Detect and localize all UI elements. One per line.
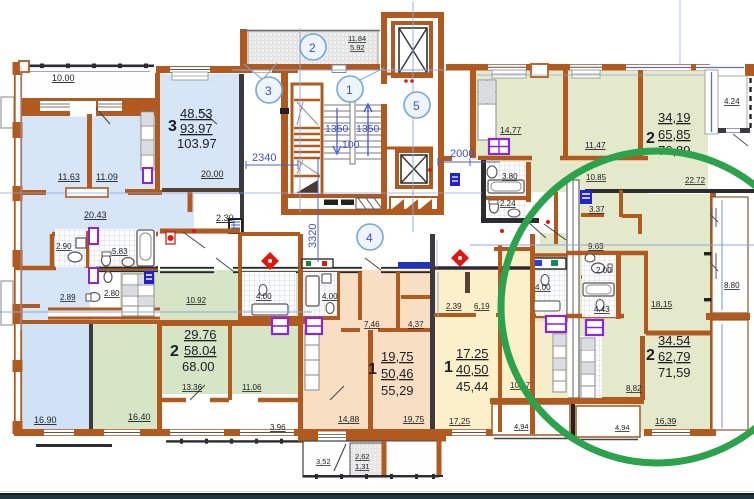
svg-text:4,37: 4,37 <box>408 320 424 329</box>
svg-text:34,19: 34,19 <box>658 110 691 125</box>
svg-text:8.80: 8.80 <box>724 281 740 290</box>
svg-text:48.53: 48.53 <box>180 106 213 121</box>
svg-text:4.00: 4.00 <box>322 292 338 301</box>
svg-text:20.43: 20.43 <box>84 210 107 220</box>
svg-text:10.85: 10.85 <box>586 173 607 182</box>
svg-text:34.54: 34.54 <box>658 333 691 348</box>
svg-text:4: 4 <box>366 231 373 245</box>
svg-text:3,52: 3,52 <box>316 457 331 466</box>
svg-text:14,77: 14,77 <box>500 125 522 135</box>
svg-text:2: 2 <box>646 130 655 147</box>
svg-text:2.80: 2.80 <box>104 289 120 298</box>
svg-text:3.37: 3.37 <box>589 205 605 214</box>
svg-text:10.00: 10.00 <box>52 73 75 83</box>
svg-text:65,85: 65,85 <box>658 127 691 142</box>
svg-text:4.00: 4.00 <box>535 283 551 292</box>
svg-text:71,59: 71,59 <box>658 365 691 380</box>
svg-text:40,50: 40,50 <box>456 362 489 377</box>
svg-text:11.63: 11.63 <box>58 172 80 182</box>
svg-text:5: 5 <box>413 99 420 113</box>
svg-text:45,44: 45,44 <box>456 379 489 394</box>
svg-text:68.00: 68.00 <box>182 359 215 374</box>
svg-text:3.80: 3.80 <box>502 172 518 181</box>
svg-text:16.40: 16.40 <box>128 412 151 422</box>
svg-text:4,94: 4,94 <box>615 423 630 432</box>
svg-text:16,39: 16,39 <box>655 416 677 426</box>
svg-text:17.25: 17.25 <box>456 346 489 361</box>
svg-text:50,46: 50,46 <box>381 366 414 381</box>
svg-text:2: 2 <box>170 343 179 360</box>
svg-text:1350: 1350 <box>325 123 349 135</box>
svg-text:14,88: 14,88 <box>338 414 360 424</box>
svg-text:17,25: 17,25 <box>449 416 471 426</box>
svg-text:2.39: 2.39 <box>446 302 462 311</box>
svg-text:2.00: 2.00 <box>596 266 612 275</box>
svg-text:2.30: 2.30 <box>216 213 234 223</box>
svg-text:3: 3 <box>265 84 272 98</box>
svg-text:2: 2 <box>309 41 316 55</box>
svg-text:5.92: 5.92 <box>350 43 365 52</box>
svg-text:18,15: 18,15 <box>651 299 673 309</box>
svg-text:103.97: 103.97 <box>177 136 217 151</box>
svg-text:4.24: 4.24 <box>724 97 740 106</box>
svg-text:29.76: 29.76 <box>184 327 217 342</box>
svg-text:100: 100 <box>342 139 360 151</box>
svg-text:1: 1 <box>346 83 353 97</box>
svg-text:19,75: 19,75 <box>381 349 414 364</box>
svg-text:1: 1 <box>444 359 453 376</box>
svg-text:11.09: 11.09 <box>96 172 118 182</box>
svg-text:55,29: 55,29 <box>381 383 414 398</box>
svg-text:3.96: 3.96 <box>270 423 286 432</box>
svg-text:5.83: 5.83 <box>112 247 128 256</box>
svg-text:6,19: 6,19 <box>474 302 490 311</box>
svg-text:11.84: 11.84 <box>348 34 366 43</box>
svg-text:13.36: 13.36 <box>182 383 203 392</box>
svg-text:22.72: 22.72 <box>685 176 706 185</box>
svg-text:7,46: 7,46 <box>364 320 380 329</box>
svg-text:3: 3 <box>168 118 177 135</box>
svg-text:3320: 3320 <box>307 224 319 248</box>
svg-text:8,82: 8,82 <box>626 384 642 393</box>
svg-text:1350: 1350 <box>356 123 380 135</box>
svg-text:1,31: 1,31 <box>355 462 370 471</box>
svg-text:10.92: 10.92 <box>186 296 207 305</box>
svg-text:62,79: 62,79 <box>658 349 691 364</box>
svg-text:58.04: 58.04 <box>184 343 217 358</box>
svg-text:2.89: 2.89 <box>60 293 76 302</box>
svg-text:2: 2 <box>646 347 655 364</box>
svg-text:2340: 2340 <box>252 152 276 164</box>
svg-text:1: 1 <box>368 361 377 378</box>
svg-text:4,94: 4,94 <box>514 422 529 431</box>
svg-text:2.24: 2.24 <box>500 199 516 208</box>
svg-text:19,75: 19,75 <box>403 414 425 424</box>
svg-text:2.90: 2.90 <box>56 242 72 251</box>
svg-text:4.00: 4.00 <box>256 292 272 301</box>
svg-text:11.06: 11.06 <box>242 383 262 392</box>
svg-text:20.00: 20.00 <box>201 169 224 179</box>
svg-text:9.63: 9.63 <box>588 242 604 251</box>
svg-text:16.90: 16.90 <box>34 415 57 425</box>
svg-text:2000: 2000 <box>450 148 474 160</box>
svg-text:93.97: 93.97 <box>180 121 213 136</box>
svg-text:11,47: 11,47 <box>585 140 606 150</box>
svg-text:2,62: 2,62 <box>355 452 370 461</box>
svg-text:4.43: 4.43 <box>594 305 610 314</box>
